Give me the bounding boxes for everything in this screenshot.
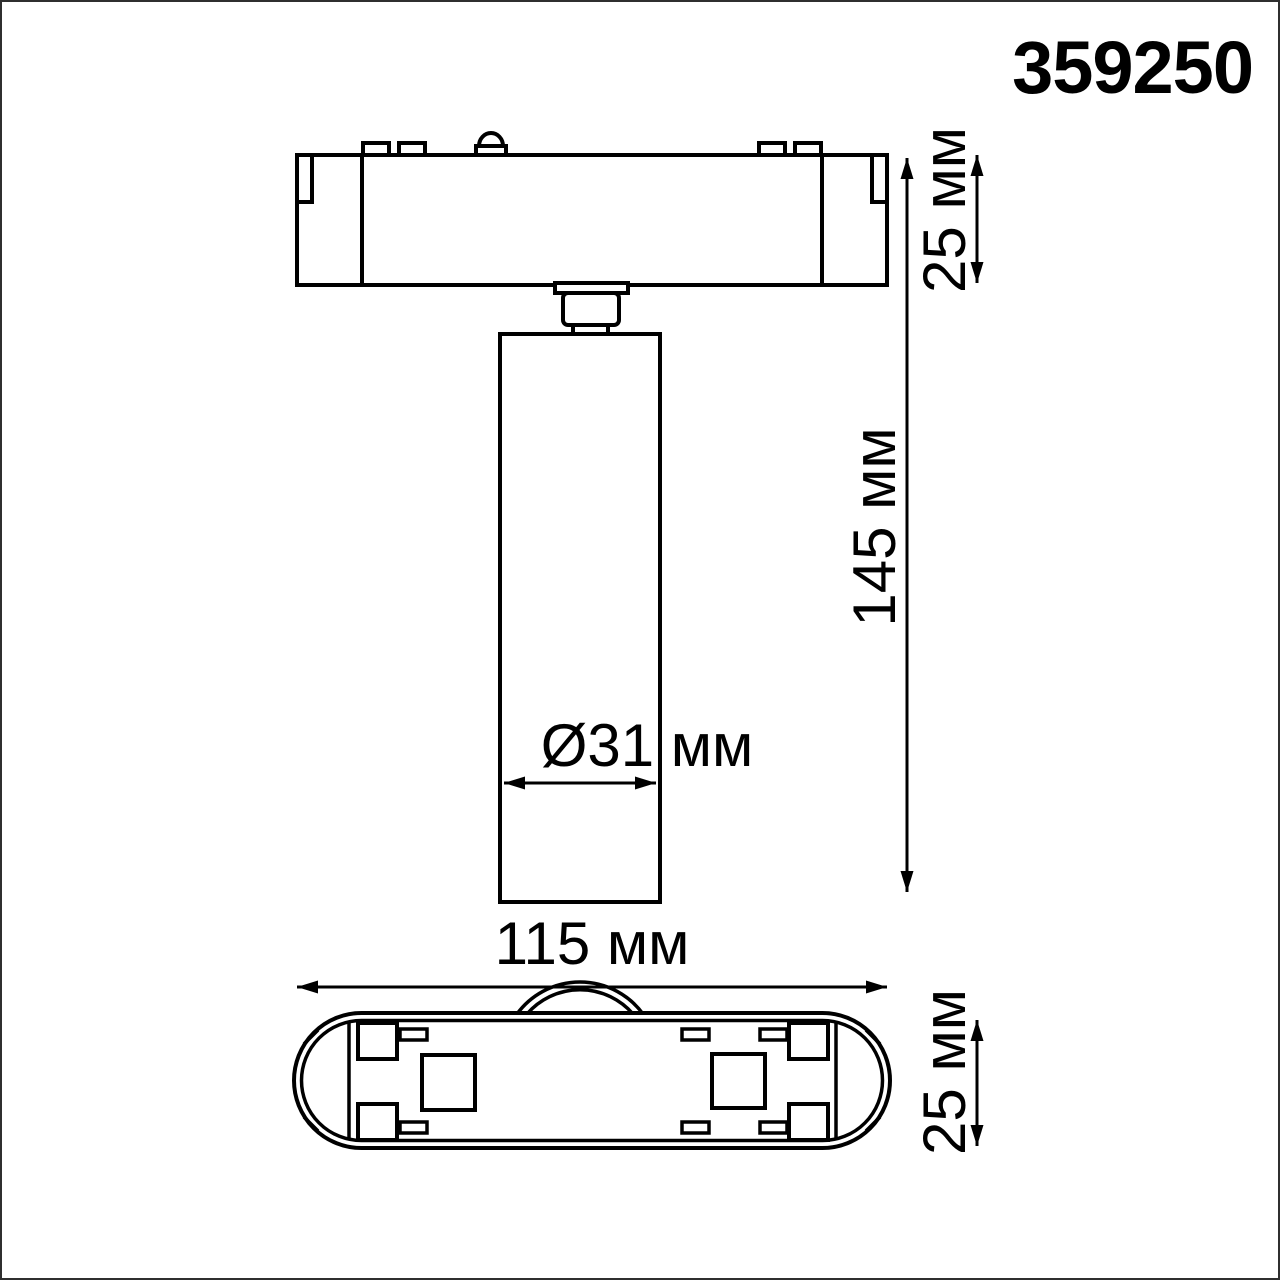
contact-slot-bottom-middle <box>682 1122 709 1133</box>
contact-slot-bottom-left <box>400 1122 427 1133</box>
corner-pad-bottom-left <box>358 1104 397 1140</box>
corner-pad-top-left <box>358 1023 397 1059</box>
drawing-canvas: 25 мм 145 мм Ø31 мм 115 мм 25 мм 359250 <box>0 0 1280 1280</box>
corner-pad-bottom-right <box>789 1104 828 1140</box>
lamp-cylinder <box>500 334 660 902</box>
magnet-square-left <box>422 1055 475 1110</box>
magnet-square-right <box>712 1054 765 1108</box>
dimension-label-base-height: 25 мм <box>911 989 978 1155</box>
dimension-label-diameter: Ø31 мм <box>541 712 754 779</box>
technical-drawing: 25 мм 145 мм Ø31 мм 115 мм 25 мм 359250 <box>0 0 1280 1280</box>
bottom-view <box>294 982 890 1148</box>
adapter-body <box>297 155 887 285</box>
contact-slot-top-right <box>760 1029 787 1040</box>
front-view <box>297 133 887 902</box>
dimension-label-adapter-height: 25 мм <box>911 127 978 293</box>
joint-block <box>563 293 619 325</box>
contact-slot-top-left <box>400 1029 427 1040</box>
contact-slot-bottom-right <box>760 1122 787 1133</box>
dimension-label-length: 115 мм <box>495 910 690 977</box>
contact-slot-top-middle <box>682 1029 709 1040</box>
dimension-label-total-height: 145 мм <box>841 427 908 626</box>
corner-pad-top-right <box>789 1023 828 1059</box>
product-code: 359250 <box>1012 26 1253 109</box>
